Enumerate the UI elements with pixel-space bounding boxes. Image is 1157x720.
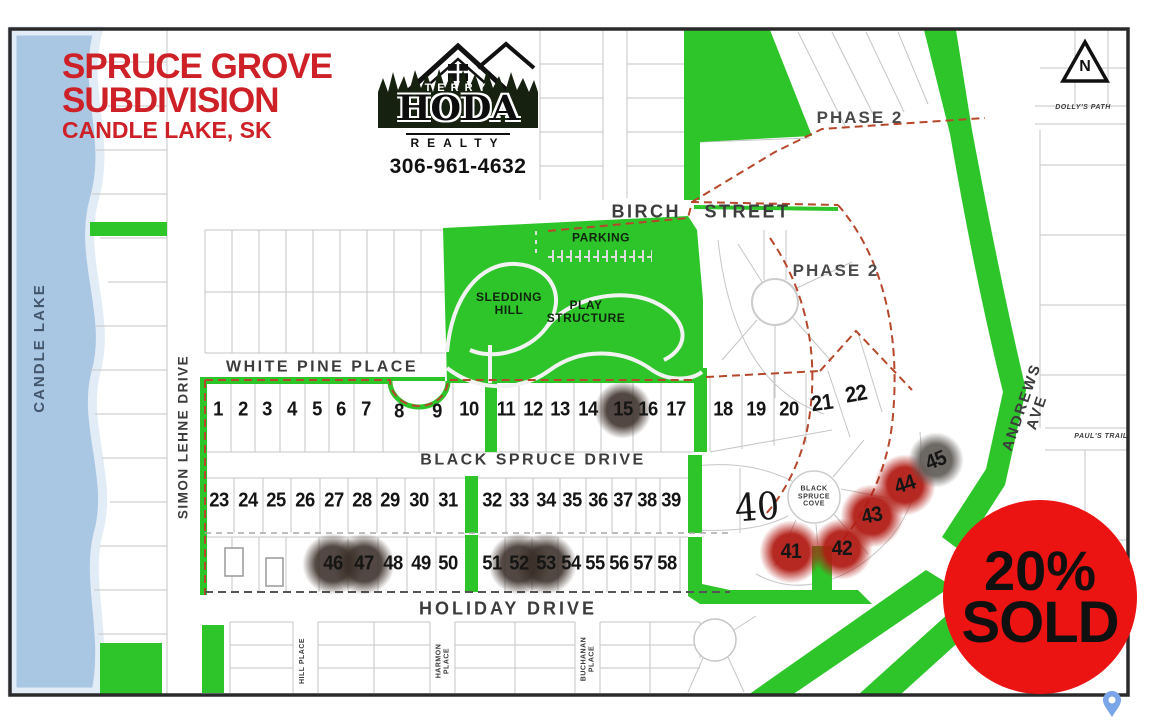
street-label-black-spruce: BLACK SPRUCE DRIVE (420, 451, 645, 468)
bottom-culdesac (694, 619, 736, 661)
building-outlines (225, 548, 283, 586)
badge-sold: SOLD (961, 596, 1118, 649)
area-label-phase2-mid: PHASE 2 (793, 262, 880, 280)
street-label-hill-place: HILL PLACE (299, 638, 307, 684)
street-label-simon-lehne: SIMON LEHNE DRIVE (177, 355, 192, 519)
street-label-holiday: HOLIDAY DRIVE (419, 599, 597, 618)
street-label-black-spruce-cove: BLACK SPRUCE COVE (798, 486, 830, 509)
area-label-phase2-top: PHASE 2 (817, 109, 904, 127)
area-label-sledding-hill: SLEDDING HILL (476, 291, 542, 317)
street-label-birch: BIRCH STREET (611, 202, 790, 221)
title-line3: CANDLE LAKE, SK (62, 119, 332, 142)
realty-logo: TERRY HODA REALTY 306-961-4632 (372, 36, 544, 179)
phase2-culdesac (752, 279, 798, 325)
title-line2: SUBDIVISION (62, 84, 332, 118)
page-title: SPRUCE GROVE SUBDIVISION CANDLE LAKE, SK (62, 50, 332, 141)
logo-phone-number: 306-961-4632 (372, 155, 544, 179)
water-label-candle-lake: CANDLE LAKE (32, 283, 48, 413)
area-label-parking: PARKING (572, 232, 630, 245)
realty-logo-art: TERRY HODA (378, 36, 538, 132)
subdivision-map-page: 1234567891011121314151617181920212223242… (0, 0, 1157, 720)
street-label-white-pine: WHITE PINE PLACE (226, 358, 418, 375)
logo-name-sub: REALTY (406, 133, 509, 150)
badge-percent: 20% (984, 545, 1096, 597)
street-label-dollys-path: DOLLY'S PATH (1055, 104, 1111, 112)
white-pine-culdesac (390, 381, 448, 407)
area-label-play-structure: PLAY STRUCTURE (547, 299, 626, 325)
logo-name-main: HODA (397, 88, 518, 129)
sold-percentage-badge: 20% SOLD (943, 500, 1137, 694)
street-label-harmon-place: HARMON PLACE (435, 644, 450, 679)
north-arrow-label: N (1079, 58, 1091, 76)
location-pin-icon (1103, 691, 1121, 717)
street-label-pauls-trail: PAUL'S TRAIL (1074, 433, 1127, 441)
street-label-buchanan-place: BUCHANAN PLACE (580, 637, 595, 681)
title-line1: SPRUCE GROVE (62, 50, 332, 84)
